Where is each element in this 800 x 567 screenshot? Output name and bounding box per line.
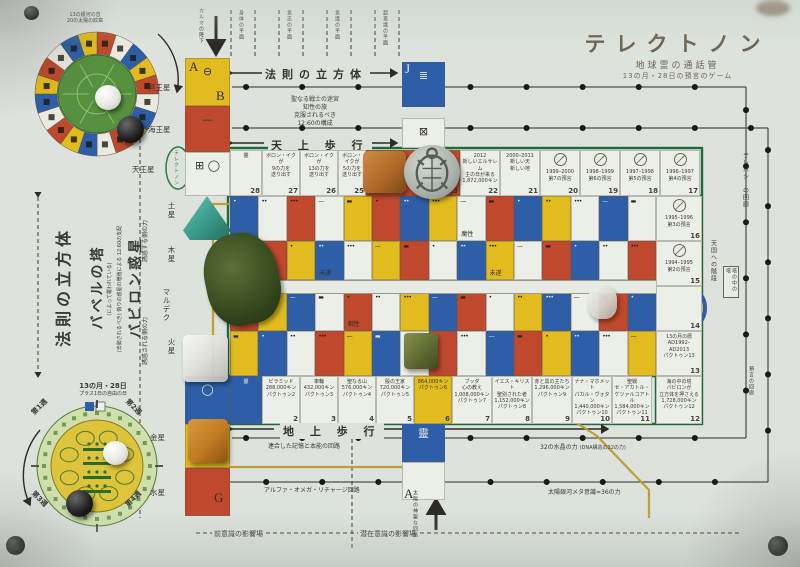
mayan-mark: ••: [290, 333, 295, 340]
track-bottom-cell-number: 6: [445, 415, 450, 423]
grid-cell-label: 相性: [348, 319, 360, 328]
grid-cell[interactable]: •••: [287, 196, 315, 241]
left-strip-white[interactable]: ⊞ ◯: [185, 152, 230, 196]
grid-cell[interactable]: •: [258, 331, 286, 376]
track-right-cell-number: 16: [690, 232, 700, 240]
track-bottom-cell[interactable]: ピラミッド288,000キンパクトゥン22: [262, 376, 300, 424]
mayan-mark: —: [318, 198, 323, 205]
mayan-mark: —: [631, 333, 636, 340]
mayan-mark: —: [574, 294, 579, 301]
track-bottom-cell[interactable]: ナナ・マホメットパカル・ヴォタン1,440,000キンパクトゥン1010: [572, 376, 612, 424]
grid-cell-label: 魔性: [461, 229, 473, 238]
track-top-cell-number: 18: [648, 187, 658, 195]
grid-cell-label: 未遂: [490, 268, 502, 277]
track-top-cell-text: ボロン・イクが13の力を送り出す: [302, 153, 336, 178]
mayan-mark: •: [517, 198, 520, 205]
corner-mark-bottomright: [768, 536, 788, 556]
top-wheel-label: 13の銀河の音20の太陽の紋章: [40, 12, 130, 24]
telektonon-board-photo: テレクトノン 地球霊の通話管 13の月・28日の預言のゲーム 13の銀河の音20…: [0, 0, 800, 567]
track-top-cell-number: 17: [688, 187, 698, 195]
track-bottom-cell-text: 靈: [232, 379, 260, 385]
mayan-mark: ▬: [460, 294, 465, 301]
track-bottom-cell-number: 11: [640, 415, 650, 423]
grid-cell[interactable]: —: [287, 292, 315, 331]
track-top-cell-text: 靈: [232, 153, 260, 159]
track-right-cell[interactable]: 1994–1995第2の預言15: [656, 241, 702, 286]
track-bottom-cell[interactable]: 聖なる山576,000キンパクトゥン44: [338, 376, 376, 424]
track-top-cell-number: 19: [608, 187, 618, 195]
prophecy-glyph: [594, 153, 607, 166]
mayan-mark: ▬: [347, 198, 352, 205]
grid-cell[interactable]: •••: [571, 196, 599, 241]
grid-cell[interactable]: •: [486, 292, 514, 331]
grid-cell[interactable]: •: [372, 196, 400, 241]
mayan-mark: •••: [631, 243, 639, 250]
track-bottom-cell-text: ブッダ心の教え1,008,000キンパクトゥン7: [454, 379, 490, 404]
planet-label: 冥王星: [148, 82, 171, 93]
track-top-cell[interactable]: ボロン・イクが5の力を送り出す25: [338, 150, 366, 196]
mayan-mark: ••: [460, 243, 465, 250]
track-right-cell-number: 12: [690, 415, 700, 423]
amber-cube-piece[interactable]: [363, 151, 406, 193]
track-top-cell[interactable]: 1997–1998第5の預言18: [620, 150, 660, 196]
grid-cell[interactable]: •••: [429, 196, 457, 241]
planet-label: マルデク: [161, 288, 172, 340]
mayan-mark: •••: [545, 294, 553, 301]
mayan-mark: •••: [489, 243, 497, 250]
karma-label: カルマの降下: [198, 8, 204, 54]
grid-cell[interactable]: ▬: [486, 196, 514, 241]
mayan-mark: •: [545, 333, 548, 340]
grid-cell[interactable]: ▬: [514, 331, 542, 376]
grid-cell[interactable]: ••: [372, 292, 400, 331]
telepathy-corridor-label: テレパシーの回廊: [741, 152, 749, 242]
grid-cell[interactable]: •••: [628, 241, 656, 280]
grid-cell[interactable]: —: [372, 241, 400, 280]
mayan-mark: •: [631, 294, 634, 301]
grid-cell[interactable]: —: [486, 331, 514, 376]
track-bottom-cell-text: 車輪432,000キンパクトゥン3: [302, 379, 336, 398]
grid-cell[interactable]: ••: [571, 331, 599, 376]
grid-cell[interactable]: ••: [542, 196, 570, 241]
track-top-cell-number: 21: [528, 187, 538, 195]
grid-cell[interactable]: •••: [542, 292, 570, 331]
track-bottom-cell-number: 8: [525, 415, 530, 423]
letter-a-bottom: A: [404, 486, 413, 502]
ground-walk-label: 地 上 歩 行: [280, 423, 384, 439]
grid-cell[interactable]: ▬: [372, 331, 400, 376]
prophecy-glyph: [554, 153, 567, 166]
letter-b-top: B: [216, 88, 225, 104]
orange-cube-piece[interactable]: [188, 419, 228, 463]
grid-cell[interactable]: —: [628, 331, 656, 376]
mayan-mark: —: [460, 198, 465, 205]
grid-cell[interactable]: ▬: [457, 292, 485, 331]
tower-in-tower-box: 塔の中の塔: [723, 266, 739, 298]
planet-label: 木星: [166, 246, 177, 280]
grid-cell[interactable]: —: [315, 196, 343, 241]
heaven-stairs-label: 天国への階段: [709, 240, 717, 316]
track-bottom-cell[interactable]: 864,000キンパクトゥン66: [414, 376, 452, 424]
planet-label: 海王星: [148, 124, 171, 135]
left-strip-white-glyph: ⊞ ◯: [186, 159, 229, 172]
white-stone-top-wheel[interactable]: [95, 85, 121, 110]
grid-cell[interactable]: ••: [287, 331, 315, 376]
track-top-cell[interactable]: ボロン・イクが9の力を送り出す27: [262, 150, 300, 196]
track-right-cell-number: 13: [690, 367, 700, 375]
mayan-mark: ••: [517, 294, 522, 301]
grid-cell[interactable]: ••: [258, 196, 286, 241]
game-subtitle2: 13の月・28日の預言のゲーム: [570, 71, 785, 81]
grid-cell[interactable]: ▬: [542, 241, 570, 280]
grid-cell[interactable]: •: [571, 241, 599, 280]
corner-stain-topright: [756, 0, 790, 16]
mayan-mark: ••: [261, 198, 266, 205]
track-bottom-cell-number: 2: [293, 415, 298, 423]
letter-j: J: [405, 61, 410, 77]
grid-cell[interactable]: •: [514, 196, 542, 241]
mayan-mark: •: [233, 198, 236, 205]
track-top-cell-number: 26: [326, 187, 336, 195]
track-bottom-cell-text: ナナ・マホメットパカル・ヴォタン1,440,000キンパクトゥン10: [574, 379, 610, 417]
plane-column-label: 身体の平面: [238, 10, 244, 58]
track-right-cell-text: 1994–1995第2の預言: [658, 244, 700, 273]
mayan-mark: •: [574, 243, 577, 250]
grid-cell[interactable]: ▬: [315, 292, 343, 331]
grid-cell[interactable]: ••: [599, 241, 627, 280]
grid-cell[interactable]: •: [628, 292, 656, 331]
mayan-mark: —: [602, 198, 607, 205]
mayan-mark: •••: [574, 198, 582, 205]
mayan-mark: •••: [403, 294, 411, 301]
crystal-power-label: 32の水晶の力 (DNA構造の32の力): [540, 444, 626, 452]
track-right-cell[interactable]: 1995–1996第3の預言16: [656, 196, 702, 241]
mayan-mark: —: [375, 243, 380, 250]
mayan-mark: •••: [432, 198, 440, 205]
grid-cell[interactable]: •••: [344, 241, 372, 280]
track-right-cell-number: 15: [690, 277, 700, 285]
left-strip-blue[interactable]: ◯: [185, 376, 230, 424]
mayan-mark: •: [261, 333, 264, 340]
track-bottom-cell-number: 4: [369, 415, 374, 423]
mayan-mark: •••: [460, 333, 468, 340]
letter-g: G: [214, 490, 223, 506]
track-bottom-cell[interactable]: 赤と黒の主たち1,296,000キンパクトゥン99: [532, 376, 572, 424]
mayan-mark: •: [347, 294, 350, 301]
mayan-mark: ▬: [517, 333, 522, 340]
mayan-mark: ••: [545, 198, 550, 205]
mayan-mark: •: [432, 243, 435, 250]
plane-column-label: 超意識の平面: [382, 10, 388, 58]
letter-a-top: A: [189, 59, 198, 75]
left-strip-red[interactable]: —: [185, 106, 230, 152]
planet-label: 金星: [150, 432, 165, 443]
grid-cell[interactable]: ▬: [230, 331, 258, 376]
planet-label: 土星: [166, 202, 177, 236]
grid-cell[interactable]: ▬: [628, 196, 656, 241]
track-bottom-cell-text: 赤と黒の主たち1,296,000キンパクトゥン9: [534, 379, 570, 398]
planet-label: 水星: [150, 487, 165, 498]
grid-cell[interactable]: •••: [599, 331, 627, 376]
mayan-mark: •••: [602, 333, 610, 340]
mayan-mark: —: [347, 333, 352, 340]
planet-label: 天王星: [132, 164, 155, 175]
mid-strip-blue-bottom[interactable]: 靈: [402, 418, 445, 462]
track-bottom-cell[interactable]: 聖戦セ・アカトル・ケツァルコアトル1,584,000キンパクトゥン1111: [612, 376, 652, 424]
mayan-mark: •••: [347, 243, 355, 250]
track-bottom-cell-text: 聖なる山576,000キンパクトゥン4: [340, 379, 374, 398]
mayan-mark: ••: [602, 243, 607, 250]
mayan-mark: •: [290, 243, 293, 250]
plane-column-label: 意識の平面: [334, 10, 340, 58]
track-bottom-cell-text: 聖戦セ・アカトル・ケツァルコアトル1,584,000キンパクトゥン11: [614, 379, 650, 417]
grid-cell[interactable]: •: [542, 331, 570, 376]
track-bottom-cell-number: 9: [565, 415, 570, 423]
grid-cell[interactable]: —: [599, 196, 627, 241]
game-title: テレクトノン: [570, 28, 785, 58]
track-right-cell[interactable]: 14: [656, 286, 702, 331]
warrior-maze-text: 聖なる戦士の迷宮知性の旅 克服されるべき12:60の構成: [240, 96, 390, 128]
track-bottom-cell-text: 864,000キンパクトゥン6: [416, 379, 450, 392]
grid-cell[interactable]: •••: [315, 331, 343, 376]
track-right-cell[interactable]: 13の月の暦AD1992–AD2013パクトゥン1313: [656, 331, 702, 376]
mayan-mark: —: [432, 294, 437, 301]
track-top-cell[interactable]: ボロン・イクが13の力を送り出す26: [300, 150, 338, 196]
track-bottom-cell-number: 10: [600, 415, 610, 423]
meta-consciousness-label: 太陽銀河メタ意識=36の力: [548, 489, 621, 497]
grid-cell[interactable]: ••: [400, 196, 428, 241]
prophecy-glyph: [674, 153, 687, 166]
grid-cell-label: 未遂: [319, 268, 331, 277]
start-oval-label: テレクトノン: [173, 150, 179, 188]
track-top-cell-number: 20: [568, 187, 578, 195]
field-right-label: 潜在意識の影響場: [358, 529, 418, 539]
prophecy-glyph: [634, 153, 647, 166]
mayan-mark: —: [489, 333, 494, 340]
track-top-cell-text: 1998–1999第6の預言: [582, 153, 618, 182]
track-bottom-cell-number: 5: [407, 415, 412, 423]
prophecy-glyph: [673, 244, 686, 257]
grid-cell[interactable]: ••: [457, 241, 485, 280]
track-top-cell-number: 22: [488, 187, 498, 195]
grid-cell[interactable]: •: [287, 241, 315, 280]
mayan-mark: •: [489, 294, 492, 301]
field-left-label: 前意識の影響場: [212, 529, 265, 539]
quartz-crystal-piece[interactable]: [588, 286, 617, 319]
mayan-mark: ▬: [375, 333, 380, 340]
grid-cell[interactable]: —: [344, 331, 372, 376]
mayan-mark: —: [290, 294, 295, 301]
track-top-cell-text: 1996–1997第4の預言: [662, 153, 698, 182]
mayan-mark: •••: [318, 333, 326, 340]
track-right-cell-number: 14: [690, 322, 700, 330]
track-top-cell[interactable]: 1999–2000第7の預言20: [540, 150, 580, 196]
grid-cell[interactable]: ••: [514, 292, 542, 331]
track-bottom-cell-number: 3: [331, 415, 336, 423]
track-top-cell[interactable]: 靈28: [230, 150, 262, 196]
planet-label: 火星: [166, 338, 177, 372]
plane-column-label: 意志の平面: [286, 10, 292, 58]
black-stone-bottom-wheel[interactable]: [66, 490, 93, 517]
mayan-mark: ▬: [545, 243, 550, 250]
track-top-cell-text: 1999–2000第7の預言: [542, 153, 578, 182]
force-bottom-label: 誘惑される側の力: [137, 241, 155, 441]
white-stone-bottom-wheel[interactable]: [103, 441, 128, 465]
mayan-mark: ▬: [233, 333, 238, 340]
mayan-mark: ••: [403, 198, 408, 205]
track-top-cell[interactable]: 2000–2011新しい天新しい地21: [500, 150, 540, 196]
mayan-mark: •: [375, 198, 378, 205]
grid-cell[interactable]: ▬: [344, 196, 372, 241]
mayan-mark: •••: [290, 198, 298, 205]
track-top-cell[interactable]: 1996–1997第4の預言17: [660, 150, 700, 196]
mayan-mark: ••: [375, 294, 380, 301]
mayan-mark: ▬: [403, 243, 408, 250]
track-bottom-cell[interactable]: 靈: [230, 376, 262, 424]
game-subtitle: 地球霊の通話管: [570, 58, 785, 71]
track-top-cell-text: 2012新しいエルサレム主の日が来る1,872,000キン: [462, 153, 498, 184]
track-right-cell-text: 13の月の暦AD1992–AD2013パクトゥン13: [658, 334, 700, 359]
mayan-mark: ••: [574, 333, 579, 340]
mayan-mark: ••: [318, 243, 323, 250]
mid-strip-white-x-glyph: ⊠: [403, 125, 444, 138]
track-top-cell-text: ボロン・イクが5の力を送り出す: [340, 153, 364, 178]
track-bottom-cell[interactable]: イエス・キリスト聖別された者1,152,000キンパクトゥン88: [492, 376, 532, 424]
track-top-cell-text: ボロン・イクが9の力を送り出す: [264, 153, 298, 178]
track-bottom-cell[interactable]: 車輪432,000キンパクトゥン33: [300, 376, 338, 424]
track-top-cell-text: 2000–2011新しい天新しい地: [502, 153, 538, 172]
track-top-cell[interactable]: 2012新しいエルサレム主の日が来る1,872,000キン22: [460, 150, 500, 196]
mayan-mark: ▬: [318, 294, 323, 301]
track-bottom-cell-text: 殷の王家720,000キンパクトゥン5: [378, 379, 412, 398]
track-top-cell-text: 1997–1998第5の預言: [622, 153, 658, 182]
track-top-cell-number: 27: [288, 187, 298, 195]
track-right-cell[interactable]: 海の中の塔バビロンが立方体を押さえる1,728,000キンパクトゥン1212: [656, 376, 702, 424]
track-top-cell[interactable]: 1998–1999第6の預言19: [580, 150, 620, 196]
crystal-cube-piece[interactable]: [183, 335, 228, 382]
title-block: テレクトノン 地球霊の通話管 13の月・28日の預言のゲーム: [570, 28, 785, 81]
grid-cell[interactable]: —: [429, 292, 457, 331]
mayan-mark: ▬: [631, 198, 636, 205]
cube-band-label: 法則の立方体: [262, 66, 370, 82]
grid-cell[interactable]: —: [514, 241, 542, 280]
track-bottom-cell[interactable]: 殷の王家720,000キンパクトゥン55: [376, 376, 414, 424]
track-bottom-cell[interactable]: ブッダ心の教え1,008,000キンパクトゥン77: [452, 376, 492, 424]
mayan-mark: ▬: [489, 198, 494, 205]
grid-cell[interactable]: •••: [457, 331, 485, 376]
track-bottom-cell-number: 7: [485, 415, 490, 423]
corner-mark-topleft: [24, 6, 39, 20]
track-right-cell-text: 1995–1996第3の預言: [658, 199, 700, 228]
silver-turtle-disc-piece[interactable]: [404, 145, 460, 199]
circuit1-label: 連合した記憶と本能の回路: [268, 443, 340, 451]
mid-strip-white-x[interactable]: ⊠: [402, 118, 445, 148]
corner-mark-bottomleft: [6, 536, 25, 555]
track-bottom-cell-text: ピラミッド288,000キンパクトゥン2: [264, 379, 298, 398]
left-strip-red-glyph: —: [186, 113, 229, 126]
track-right-cell-text: 海の中の塔バビロンが立方体を押さえる1,728,000キンパクトゥン12: [658, 379, 700, 410]
mid-strip-blue-bottom-glyph: 靈: [403, 425, 444, 441]
circuit2-label: アルファ・オメガ・リチャージ回路: [264, 487, 360, 495]
mayan-mark: —: [517, 243, 522, 250]
left-strip-blue-glyph: ◯: [186, 383, 229, 396]
black-stone-top-wheel[interactable]: [117, 116, 144, 143]
cube-of-law-label: 法則の立方体: [53, 177, 71, 397]
olive-cube-piece[interactable]: [404, 333, 438, 369]
grid-cell[interactable]: ▬: [400, 241, 428, 280]
track-bottom-cell-text: イエス・キリスト聖別された者1,152,000キンパクトゥン8: [494, 379, 530, 410]
prophecy-glyph: [673, 199, 686, 212]
grid-cell[interactable]: •••: [400, 292, 428, 331]
prophecy-corridor-label: 預言の回廊: [748, 366, 754, 418]
track-top-cell-number: 28: [250, 187, 260, 195]
grid-cell[interactable]: •: [429, 241, 457, 280]
